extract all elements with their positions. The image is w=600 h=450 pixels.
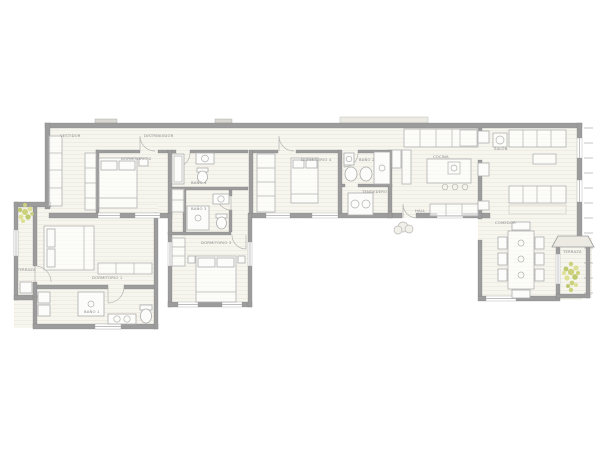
kitchen-island (427, 159, 471, 190)
chair (498, 253, 507, 265)
sink (196, 153, 214, 164)
wall (290, 213, 312, 218)
wall (49, 213, 98, 218)
roof-band (340, 117, 428, 123)
window (14, 230, 18, 256)
toilet (140, 305, 152, 323)
window (577, 138, 582, 158)
dryer (38, 305, 50, 316)
room-label-terraza-left: TERRAZA (16, 267, 36, 272)
wall-top (45, 123, 582, 128)
floor-plan-canvas: VESTIDOR DISTRIBUIDOR DORMITORIO 2 BAÑO … (0, 0, 600, 450)
toilet (216, 214, 227, 229)
window (577, 180, 582, 202)
wall (154, 213, 158, 329)
wall-int (358, 184, 392, 187)
double-sink (108, 314, 136, 324)
wall (168, 213, 172, 242)
sofa (509, 130, 566, 147)
wardrobe (257, 154, 275, 212)
wardrobe (49, 136, 62, 206)
wall-int (296, 150, 340, 153)
wall-int (249, 150, 253, 213)
wall-right (577, 158, 582, 180)
shower (172, 154, 184, 184)
wall (168, 266, 172, 307)
wall-int (168, 232, 231, 235)
wall-right (577, 123, 582, 138)
wall (252, 213, 266, 218)
room-label-vestidor: VESTIDOR (60, 133, 81, 138)
chair (498, 237, 507, 249)
wall-terrace (586, 246, 590, 298)
wall-int (168, 150, 172, 213)
wall (33, 295, 37, 328)
room-label-bano4: BAÑO 4 (191, 180, 207, 185)
furniture (20, 129, 566, 324)
side-table (493, 133, 507, 147)
window (222, 302, 242, 307)
wall-int (33, 207, 37, 266)
plant-icon (562, 262, 580, 292)
sink (344, 153, 354, 165)
window (486, 296, 516, 301)
room-label-hall: HALL (415, 208, 426, 213)
bed-double (44, 226, 94, 270)
window (266, 213, 290, 218)
door-bano1 (108, 287, 124, 303)
room-label-terraza-right: TERRAZA (562, 249, 582, 254)
dining-table (498, 222, 544, 298)
stool (462, 184, 468, 190)
wall-int (96, 150, 99, 213)
wall-int (33, 282, 37, 297)
wall-bump (215, 119, 232, 123)
toilet (345, 167, 357, 181)
room-label-comedor: COMEDOR (495, 220, 516, 225)
stool (442, 184, 448, 190)
bush-icon (394, 222, 413, 234)
bed-double (196, 256, 236, 302)
wall-int (229, 210, 232, 232)
washer-dryer (348, 193, 373, 215)
closet (172, 189, 184, 212)
wardrobe (172, 238, 185, 266)
wall-int (172, 150, 176, 153)
wardrobe (85, 153, 96, 210)
room-label-dormitorio2: DORMITORIO 2 (121, 156, 152, 161)
door-dormitorio2 (140, 136, 155, 151)
wall (120, 213, 135, 218)
wall (248, 213, 252, 242)
wall-int (342, 184, 345, 187)
door-dormitorio4 (279, 136, 294, 151)
chair (535, 237, 544, 249)
wall-int (338, 150, 342, 213)
wall (248, 266, 252, 307)
wall-terrace (556, 294, 590, 298)
room-label-cocina: COCINA (433, 154, 449, 159)
washer (38, 292, 50, 303)
stool (452, 184, 458, 190)
wall (14, 202, 51, 207)
door-dormitorio3 (232, 235, 246, 249)
wall (168, 302, 178, 307)
wall-bump (95, 119, 117, 123)
window (95, 324, 121, 329)
wall-int (124, 285, 154, 289)
wall-int (190, 150, 248, 153)
low-cabinet (98, 263, 152, 274)
wall (392, 213, 402, 218)
ac-unit (20, 282, 32, 293)
plan-drawing: VESTIDOR DISTRIBUIDOR DORMITORIO 2 BAÑO … (0, 0, 600, 450)
room-label-bano3: BAÑO 3 (191, 206, 207, 211)
room-label-dormitorio3: DORMITORIO 3 (201, 240, 232, 245)
wall-int (478, 240, 482, 296)
room-label-bano1: BAÑO 1 (84, 309, 100, 314)
shower (374, 152, 390, 184)
chair (512, 290, 530, 298)
nightstand (188, 256, 195, 263)
room-label-tendedero: TENDEDERO (361, 189, 387, 194)
rug (509, 205, 566, 214)
window (168, 242, 172, 266)
room-label-dormitorio1: DORMITORIO 1 (92, 275, 123, 280)
duct-shaft (392, 150, 401, 168)
wall (478, 296, 486, 301)
room-label-bano2: BAÑO 2 (359, 157, 375, 162)
bidet (360, 167, 372, 181)
sideboard (430, 204, 478, 216)
column (478, 201, 489, 210)
room-label-distribuidor: DISTRIBUIDOR (144, 133, 174, 138)
wall-int (229, 190, 232, 196)
column (478, 163, 489, 176)
column (478, 131, 489, 143)
chair (535, 269, 544, 281)
window (312, 213, 338, 218)
wall-int (253, 150, 278, 153)
chair (535, 253, 544, 265)
nightstand (238, 256, 245, 263)
terrace-awning (552, 236, 594, 247)
kitchen-tall-cabinet (402, 150, 411, 184)
wall-int (96, 150, 140, 153)
window (98, 213, 120, 218)
room-label-salon: SALÓN (494, 146, 508, 151)
bed-double (99, 158, 137, 208)
kitchen-counter (404, 129, 478, 147)
sofa (509, 186, 566, 203)
chair (498, 269, 507, 281)
wall (198, 302, 222, 307)
room-label-dormitorio4: DORMITORIO 4 (301, 157, 332, 162)
window (248, 242, 252, 266)
window (178, 302, 198, 307)
terrace-glass-door (556, 254, 560, 284)
bed-single (291, 158, 318, 203)
wall-int (158, 150, 168, 153)
wall-int (37, 285, 108, 289)
window (135, 213, 160, 218)
coffee-table (533, 154, 556, 164)
sink (213, 194, 229, 204)
